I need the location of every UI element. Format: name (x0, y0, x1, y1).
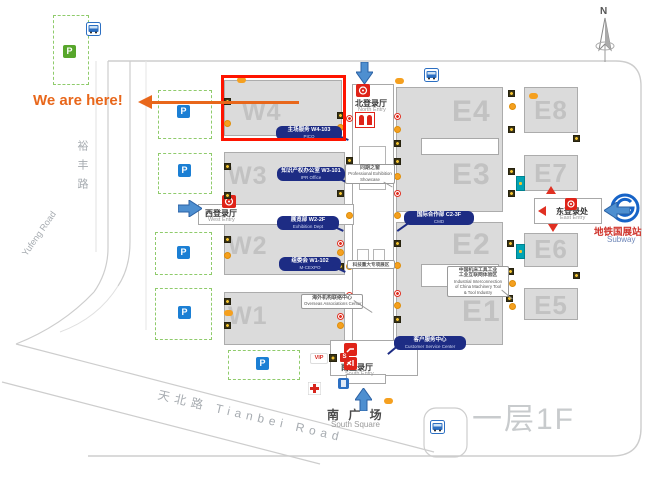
guide-arrow-up-icon (546, 186, 556, 194)
facility-icon (337, 240, 344, 247)
escalator-icon (356, 84, 370, 97)
callout-w2-office: 展览部 W2-2F Exhibition Dept (277, 216, 339, 230)
south-square-label-en: South Square (331, 420, 380, 429)
facility-icon (394, 190, 401, 197)
callout-w3-office: 知识产权办公室 W3-101 IPR Office (277, 167, 345, 181)
escalator-icon (565, 198, 577, 210)
facility-icon (224, 298, 231, 305)
hall-e7-label: E7 (524, 158, 578, 189)
facility-icon (384, 398, 393, 404)
callout-showcase: 同期之窗 Professional Exhibition Showcase (345, 164, 395, 184)
facility-icon (394, 126, 401, 133)
bus-stop-icon (86, 22, 101, 36)
vip-badge: VIP (310, 353, 328, 364)
facility-icon (346, 115, 353, 122)
gate-icon (355, 112, 375, 128)
callout-customer-service: 客户服务中心 Customer Service Center (394, 336, 466, 350)
we-are-here-label: We are here! (33, 92, 123, 109)
bus-stop-icon (424, 68, 439, 82)
south-entry-arrow-icon (355, 388, 372, 411)
compass-icon (592, 16, 618, 64)
hall-w2-label: W2 (228, 232, 268, 261)
facility-icon (224, 322, 231, 329)
exhibition-floor-map: 裕丰路 Yufeng Road 天北路 Tianbei Road 一层1F P … (0, 0, 648, 477)
facility-icon (337, 322, 344, 329)
facility-icon (346, 157, 353, 164)
hall-e1-label: E1 (462, 295, 501, 329)
guide-arrow-down-icon (548, 224, 558, 232)
annotation-arrowhead-icon (138, 95, 152, 109)
facility-icon (516, 244, 525, 259)
hall-e2-label: E2 (452, 228, 491, 262)
hall-e4-label: E4 (452, 95, 491, 129)
parking-icon: P (177, 246, 190, 259)
facility-icon (394, 140, 401, 147)
facility-icon (224, 192, 231, 199)
facility-icon (507, 240, 514, 247)
facility-icon (394, 113, 401, 120)
facility-icon (224, 163, 231, 170)
facility-icon (573, 272, 580, 279)
facility-icon (224, 252, 231, 259)
facility-icon (509, 303, 516, 310)
west-entry-label-en: West Entry (208, 217, 235, 223)
facility-icon (394, 158, 401, 165)
facility-icon (337, 313, 344, 320)
parking-icon: P (63, 45, 76, 58)
facility-icon (329, 354, 337, 362)
facility-icon (346, 212, 353, 219)
subway-station-label-en: Subway (607, 235, 635, 244)
facility-icon (394, 290, 401, 297)
facility-icon (394, 240, 401, 247)
facility-icon (394, 173, 401, 180)
facility-icon (573, 135, 580, 142)
facility-icon (394, 262, 401, 269)
east-entry-arrow-icon (604, 202, 630, 219)
hall-e8-label: E8 (524, 95, 578, 126)
facility-icon (508, 126, 515, 133)
west-entry-arrow-icon (178, 200, 202, 217)
guide-arrow-left-icon (538, 206, 546, 216)
yufeng-road-label-zh: 裕丰路 (74, 140, 90, 197)
south-entry-label-en: South Entry (345, 371, 374, 377)
callout-intl-coop: 国际合作部 C2-3F CMD (404, 211, 474, 225)
facility-icon (337, 249, 344, 256)
callout-sci-tech: 科技重大专项展区 (347, 260, 395, 269)
building-notch (421, 138, 499, 155)
facility-icon (508, 190, 515, 197)
hall-e5-label: E5 (524, 290, 578, 321)
facility-icon (508, 168, 515, 175)
highlight-rectangle (221, 75, 346, 141)
facility-icon (224, 236, 231, 243)
facility-icon (394, 212, 401, 219)
north-entry-arrow-icon (356, 62, 373, 84)
floor-label: 一层1F (472, 394, 575, 438)
facility-icon (508, 90, 515, 97)
facility-icon (394, 302, 401, 309)
info-icon (338, 378, 349, 389)
parking-icon: P (178, 164, 191, 177)
facility-icon (529, 93, 538, 99)
east-entry-label-en: East Entry (560, 215, 585, 221)
facility-icon (509, 103, 516, 110)
facility-icon (394, 316, 401, 323)
facility-icon (337, 190, 344, 197)
hall-e6-label: E6 (524, 234, 578, 265)
hall-w3-label: W3 (228, 162, 268, 191)
hall-w1-label: W1 (228, 302, 268, 331)
facility-icon (395, 78, 404, 84)
callout-w1-office: 组委会 W1-102 M-CEXPO (279, 257, 341, 271)
facility-icon (224, 310, 233, 316)
parking-icon: P (177, 105, 190, 118)
first-aid-icon (308, 382, 321, 395)
hall-e3-label: E3 (452, 158, 491, 192)
parking-icon: P (256, 357, 269, 370)
bus-stop-icon (430, 420, 445, 434)
parking-icon: P (178, 306, 191, 319)
security-badge: S (340, 353, 349, 362)
facility-icon (509, 280, 516, 287)
callout-industrial: 中国机床工具工业 工业互联网体验区 Industrial Interconnec… (447, 266, 509, 297)
facility-icon (516, 176, 525, 191)
annotation-arrow (151, 101, 299, 104)
